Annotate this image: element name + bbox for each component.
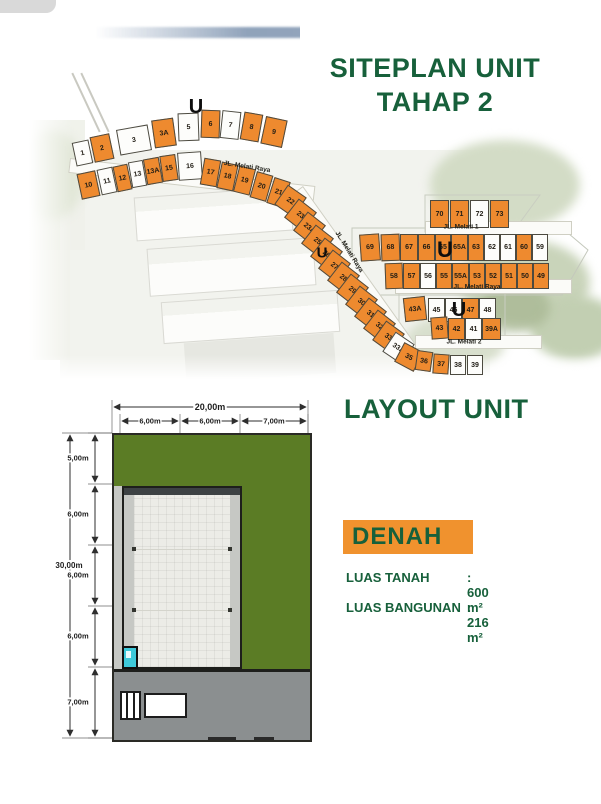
lot-58: 58 bbox=[385, 263, 404, 290]
lot-73: 73 bbox=[490, 200, 509, 228]
lot-55: 55 bbox=[436, 263, 452, 289]
lot-43: 43 bbox=[430, 316, 448, 339]
building-interior bbox=[134, 495, 230, 667]
lot-60: 60 bbox=[516, 234, 532, 261]
gate-mark bbox=[254, 737, 274, 740]
svg-text:6,00m: 6,00m bbox=[199, 417, 221, 426]
front-wall bbox=[124, 488, 240, 495]
side-wall-right bbox=[230, 495, 240, 667]
column bbox=[132, 547, 136, 551]
svg-text:5,00m: 5,00m bbox=[67, 454, 89, 463]
north-marker: U bbox=[437, 239, 453, 261]
lot-37: 37 bbox=[432, 353, 449, 374]
garden-top bbox=[114, 435, 310, 486]
lot-65A: 65A bbox=[451, 234, 468, 261]
road-label: JL. Melati 2 bbox=[446, 339, 481, 346]
lot-43A: 43A bbox=[403, 296, 427, 322]
lot-50: 50 bbox=[517, 263, 533, 289]
lot-3A: 3A bbox=[151, 118, 177, 149]
truck-cab bbox=[120, 691, 141, 720]
svg-text:7,00m: 7,00m bbox=[67, 698, 89, 707]
side-passage bbox=[114, 486, 122, 669]
north-marker: U bbox=[452, 300, 466, 320]
toilet bbox=[122, 646, 138, 669]
lot-67: 67 bbox=[400, 234, 418, 261]
svg-text:6,00m: 6,00m bbox=[139, 417, 161, 426]
lot-39: 39 bbox=[467, 355, 483, 375]
svg-text:6,00m: 6,00m bbox=[67, 571, 89, 580]
lot-15: 15 bbox=[159, 154, 178, 182]
gate-mark bbox=[208, 737, 236, 740]
luas-bangunan-value: : 216 m² bbox=[467, 600, 489, 645]
floor-plan bbox=[112, 433, 312, 742]
layout-title: LAYOUT UNIT bbox=[344, 394, 529, 425]
bay-line bbox=[134, 610, 230, 611]
building-footprint bbox=[122, 486, 242, 669]
luas-tanah-label: LUAS TANAH bbox=[346, 570, 466, 585]
road-label: JL. Melati 1 bbox=[443, 224, 478, 231]
column bbox=[228, 547, 232, 551]
truck-body bbox=[144, 693, 187, 718]
siteplan-title-line2: TAHAP 2 bbox=[320, 86, 550, 120]
lot-49: 49 bbox=[533, 263, 549, 289]
lot-63: 63 bbox=[468, 234, 484, 261]
svg-text:7,00m: 7,00m bbox=[263, 417, 285, 426]
lot-66: 66 bbox=[418, 234, 435, 261]
lot-57: 57 bbox=[403, 263, 420, 289]
svg-text:6,00m: 6,00m bbox=[67, 510, 89, 519]
svg-text:20,00m: 20,00m bbox=[195, 402, 226, 412]
lot-6: 6 bbox=[201, 110, 221, 139]
luas-bangunan-label: LUAS BANGUNAN bbox=[346, 600, 466, 615]
side-wall-left bbox=[124, 495, 134, 667]
lot-68: 68 bbox=[381, 234, 401, 262]
column bbox=[132, 608, 136, 612]
lot-3: 3 bbox=[116, 124, 152, 155]
siteplan-title-line1: SITEPLAN UNIT bbox=[320, 52, 550, 86]
denah-badge: DENAH bbox=[343, 520, 473, 554]
lot-36: 36 bbox=[415, 350, 434, 372]
lot-59: 59 bbox=[532, 234, 548, 261]
lot-7: 7 bbox=[220, 110, 242, 140]
road-label: JL. Melati Raya bbox=[454, 284, 501, 291]
lot-39A: 39A bbox=[482, 318, 501, 340]
lot-61: 61 bbox=[500, 234, 516, 261]
lot-51: 51 bbox=[501, 263, 517, 289]
lot-41: 41 bbox=[465, 318, 482, 340]
north-marker: U bbox=[317, 246, 328, 261]
lot-62: 62 bbox=[484, 234, 500, 261]
garden-right bbox=[242, 486, 310, 669]
svg-text:6,00m: 6,00m bbox=[67, 632, 89, 641]
siteplan-title: SITEPLAN UNIT TAHAP 2 bbox=[320, 52, 550, 120]
denah-badge-label: DENAH bbox=[343, 523, 442, 551]
lot-42: 42 bbox=[448, 318, 465, 340]
column bbox=[228, 608, 232, 612]
lot-69: 69 bbox=[359, 233, 381, 261]
flyer-page: 1233A567891011121313A1516171819202122232… bbox=[0, 0, 601, 804]
svg-text:30,00m: 30,00m bbox=[55, 561, 82, 570]
lot-56: 56 bbox=[420, 263, 436, 289]
lot-16: 16 bbox=[177, 151, 203, 181]
bay-line bbox=[134, 549, 230, 550]
north-marker: U bbox=[189, 97, 203, 117]
lot-38: 38 bbox=[450, 355, 466, 375]
